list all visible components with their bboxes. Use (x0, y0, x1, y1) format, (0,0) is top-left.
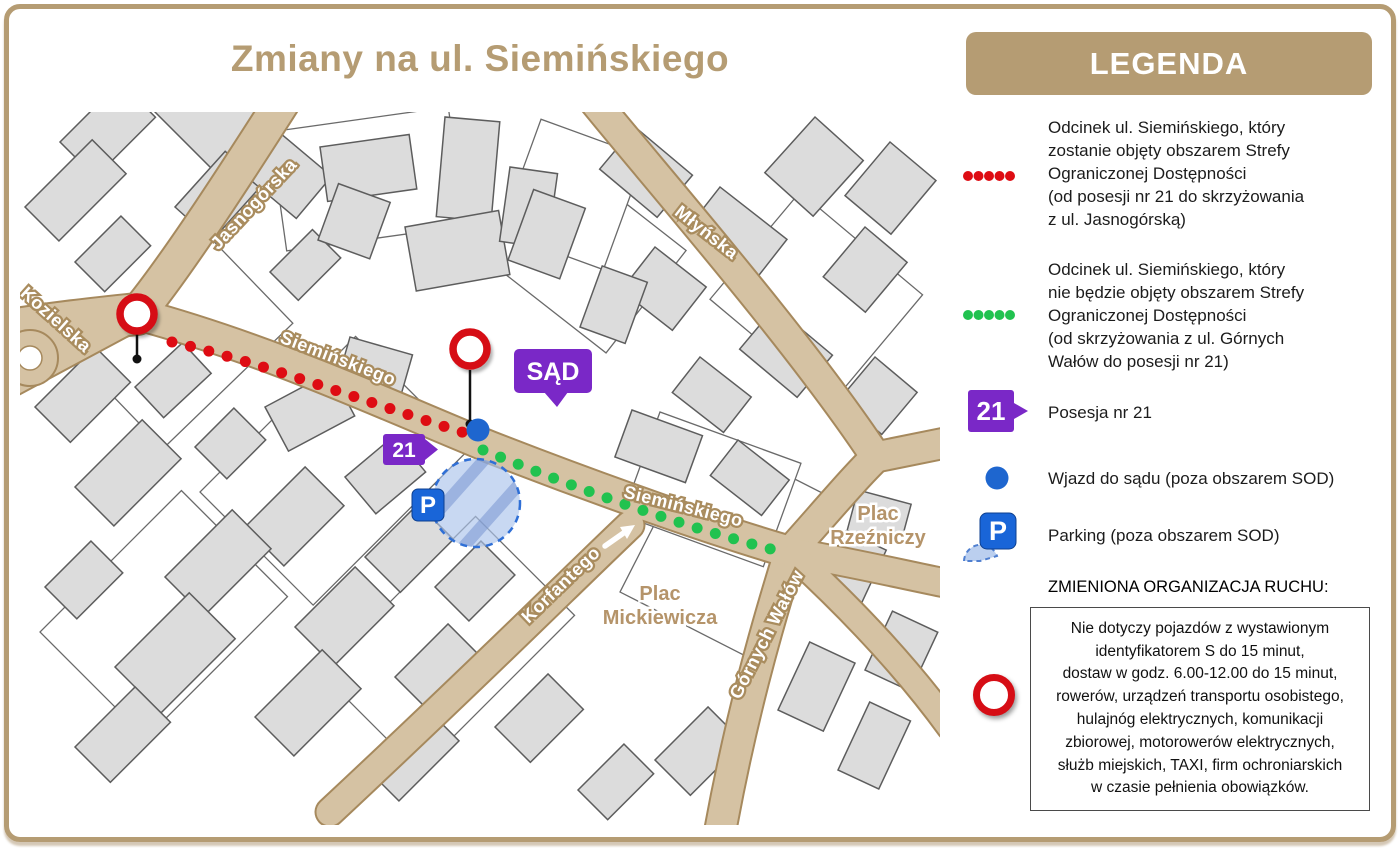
property-21-badge-label: 21 (392, 439, 416, 462)
infographic-page: Zmiany na ul. Siemińskiego (0, 0, 1400, 848)
parking-icon: P (412, 489, 444, 521)
court-badge-label: SĄD (527, 358, 580, 386)
property-21-badge-icon: 21 (968, 390, 1030, 432)
legend-item-property-text: Posesja nr 21 (1048, 401, 1370, 424)
svg-text:Plac: Plac (857, 503, 898, 525)
no-entry-sign-icon (973, 674, 1015, 716)
svg-text:P: P (989, 516, 1007, 546)
legend-item-entrance-text: Wjazd do sądu (poza obszarem SOD) (1048, 467, 1370, 490)
legend-item-parking-text: Parking (poza obszarem SOD) (1048, 524, 1370, 547)
court-entrance-dot (467, 419, 490, 442)
green-dotted-line-icon (963, 309, 1015, 321)
legend-header: LEGENDA (966, 32, 1372, 95)
traffic-note-text: Nie dotyczy pojazdów z wystawionym ident… (1039, 618, 1361, 800)
svg-text:21: 21 (977, 396, 1006, 426)
parking-legend-icon: P (962, 505, 1020, 563)
legend-item-restricted-text: Odcinek ul. Siemińskiego, który zostanie… (1048, 116, 1370, 231)
parking-icon-label: P (420, 492, 436, 519)
red-dotted-line-icon (963, 170, 1015, 182)
legend-item-open-text: Odcinek ul. Siemińskiego, który nie będz… (1048, 258, 1370, 373)
traffic-section-title: ZMIENIONA ORGANIZACJA RUCHU: (1048, 578, 1370, 597)
svg-text:Mickiewicza: Mickiewicza (603, 607, 718, 629)
map-svg: SĄD 21 P Jasnogórska Kozielska Siemiński… (20, 112, 940, 825)
svg-text:Plac: Plac (639, 583, 680, 605)
blue-dot-icon (985, 466, 1009, 490)
page-title: Zmiany na ul. Siemińskiego (20, 38, 940, 80)
map-canvas: SĄD 21 P Jasnogórska Kozielska Siemiński… (20, 112, 940, 825)
traffic-note-box: Nie dotyczy pojazdów z wystawionym ident… (1030, 607, 1370, 811)
svg-text:Rzeźniczy: Rzeźniczy (830, 527, 926, 549)
legend-panel: LEGENDA Odcinek ul. Siemińskiego, który … (960, 32, 1374, 824)
